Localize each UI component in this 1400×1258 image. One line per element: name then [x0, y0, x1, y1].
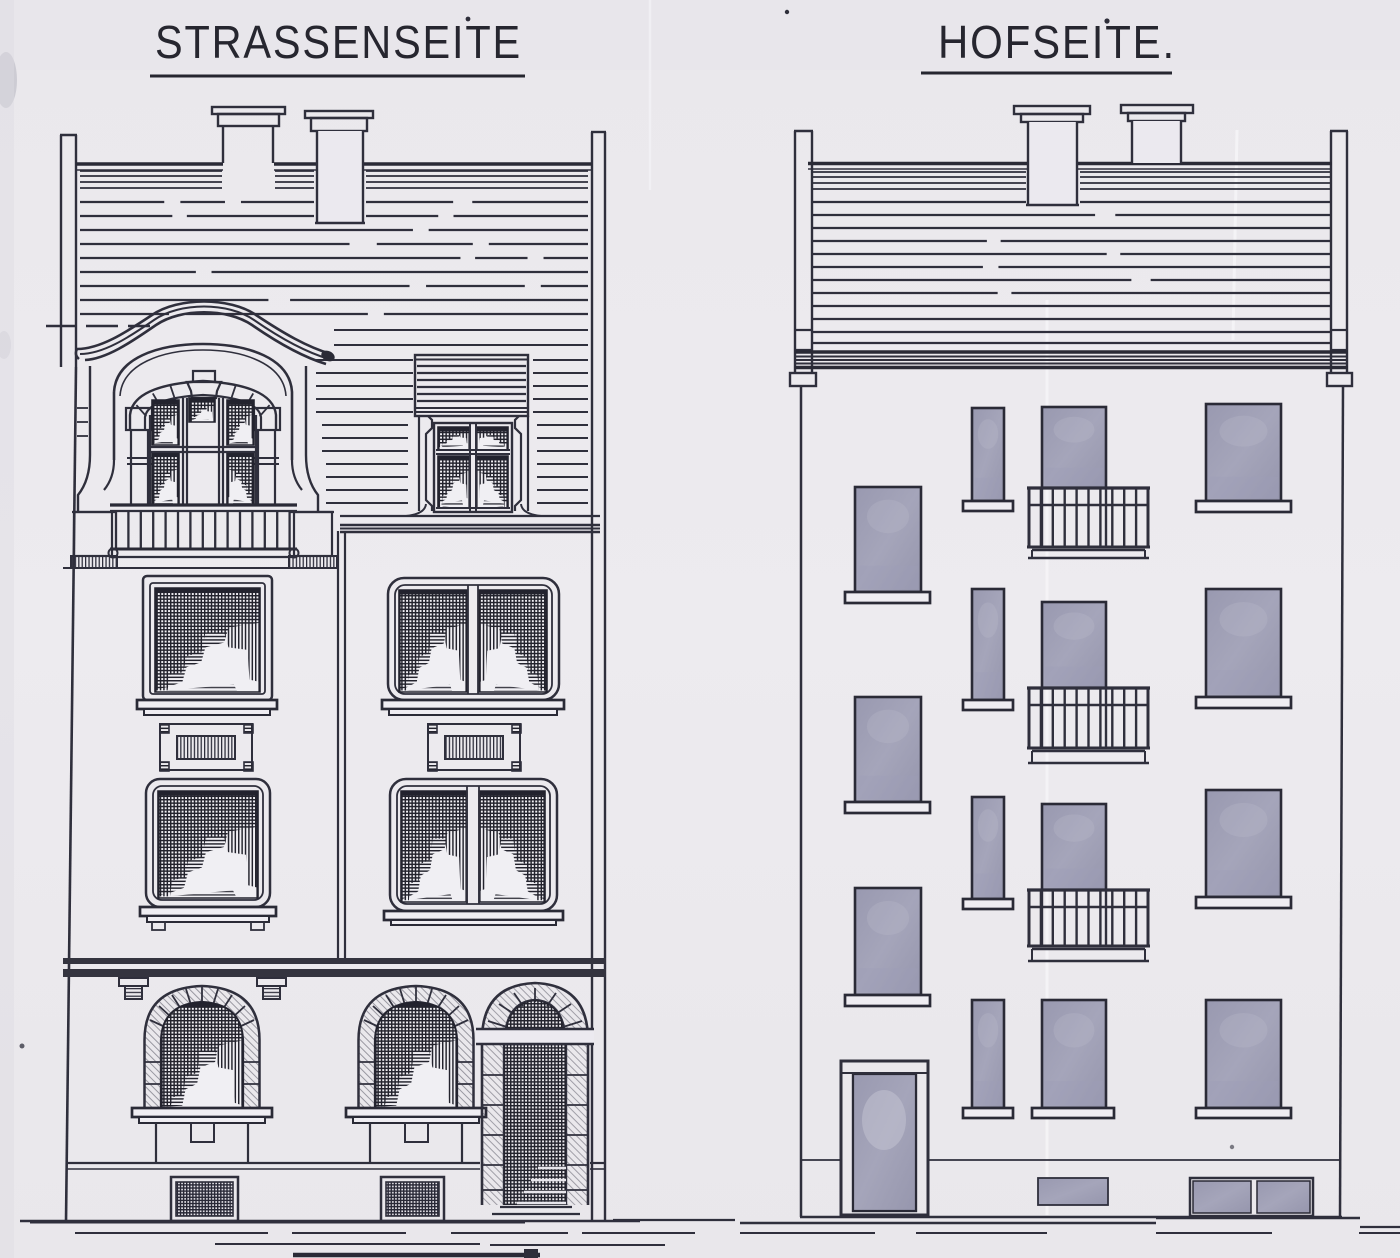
svg-text:STRASSENSEITE: STRASSENSEITE: [155, 16, 522, 68]
svg-text:HOFSEITE.: HOFSEITE.: [938, 16, 1176, 68]
